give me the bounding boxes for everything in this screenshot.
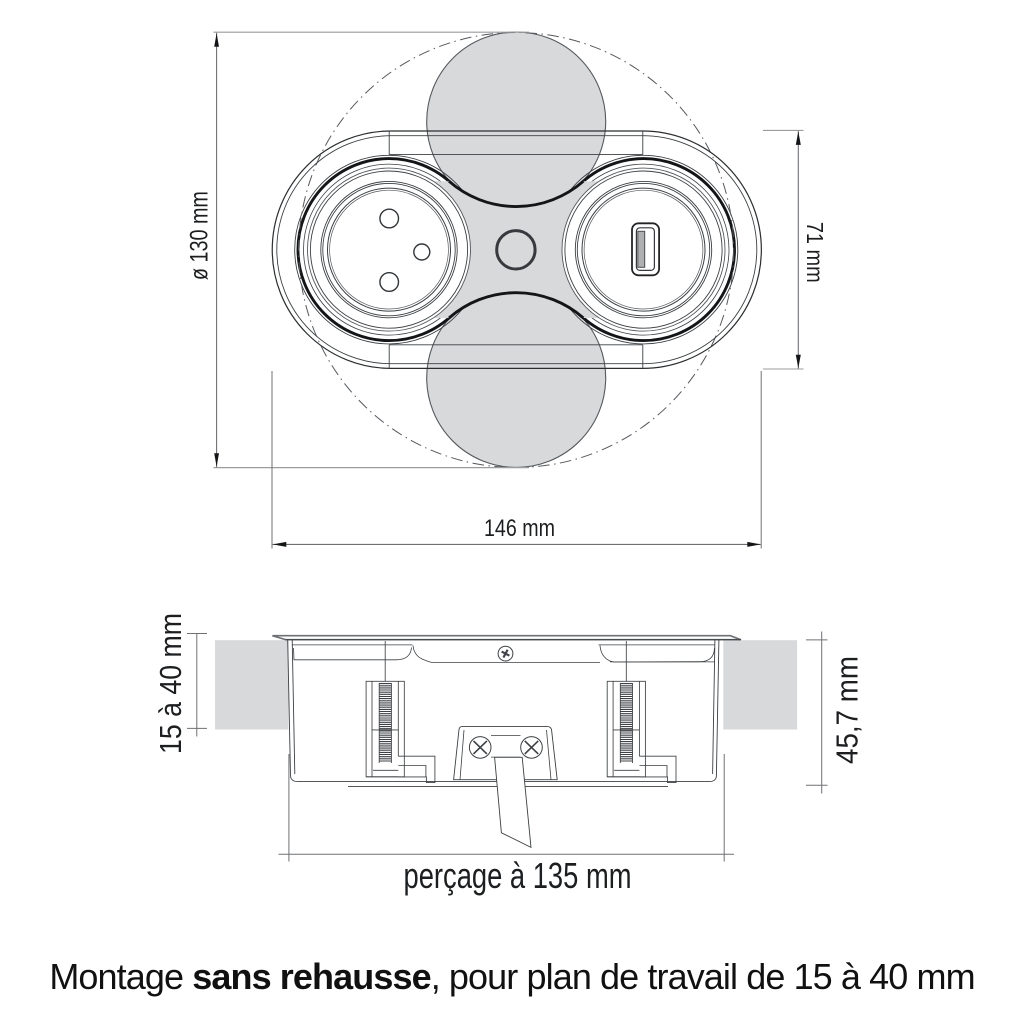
svg-text:perçage à 135 mm: perçage à 135 mm <box>404 855 632 896</box>
svg-text:ø 130 mm: ø 130 mm <box>185 191 213 280</box>
svg-text:146 mm: 146 mm <box>484 515 555 542</box>
svg-text:45,7 mm: 45,7 mm <box>830 656 865 764</box>
svg-text:71 mm: 71 mm <box>802 222 828 283</box>
svg-text:15 à 40 mm: 15 à 40 mm <box>153 613 188 754</box>
